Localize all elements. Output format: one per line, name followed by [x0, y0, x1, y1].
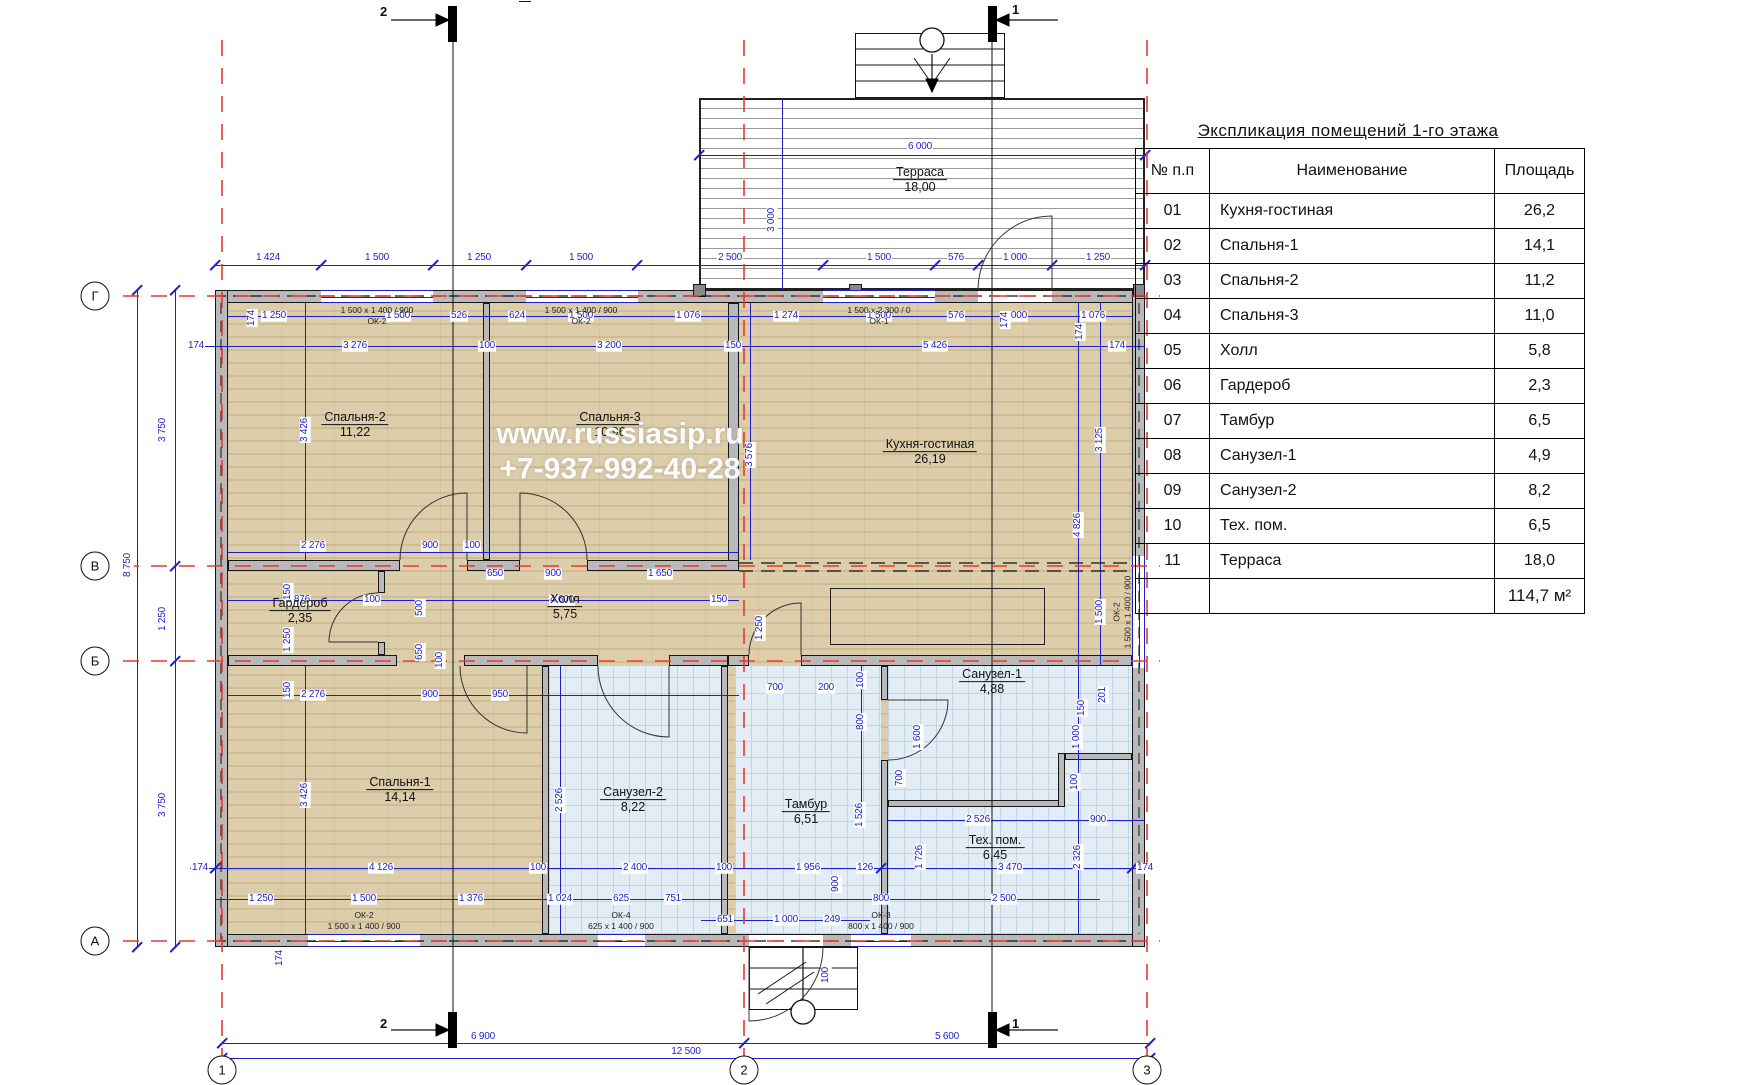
room-area: 4,88 — [980, 683, 1004, 697]
dimension-label: 4 126 — [368, 863, 394, 874]
room-schedule-table: № п.п Наименование Площадь 01 Кухня-гост… — [1135, 148, 1585, 614]
row-room-area: 11,0 — [1495, 299, 1585, 334]
wall — [1065, 753, 1132, 760]
room-label: Тех. пом.6,45 — [966, 833, 1025, 863]
room-label: Спальня-211,22 — [321, 410, 388, 440]
row-room-area: 5,8 — [1495, 334, 1585, 369]
table-row: 08 Санузел-1 4,9 — [1136, 439, 1585, 474]
dimension-label: 900 — [421, 690, 439, 701]
wall — [464, 655, 598, 666]
dimension-label: 174 — [1000, 311, 1011, 329]
wall — [215, 290, 228, 947]
dimension-label: 651 — [716, 915, 734, 926]
section-number: 1 — [1012, 2, 1019, 17]
row-number: 03 — [1136, 264, 1210, 299]
dimension-label: 1 000 — [773, 915, 799, 926]
section-flag — [988, 6, 997, 42]
table-total-row: 114,7 м² — [1136, 579, 1585, 614]
dimension-label: 174 — [1075, 323, 1086, 341]
dimension-label: 1 250 — [755, 615, 766, 641]
dimension-line — [222, 1043, 1150, 1044]
dimension-label: 100 — [715, 863, 733, 874]
table-row: 06 Гардероб 2,3 — [1136, 369, 1585, 404]
room-name: Гардероб — [270, 596, 331, 611]
room-area: 14,14 — [384, 791, 415, 805]
row-room-area: 2,3 — [1495, 369, 1585, 404]
dimension-label: 2 500 — [991, 894, 1017, 905]
room-area: 18,00 — [904, 181, 935, 195]
window-tag: 1 500 x 1 400 / 900ОК-2 — [341, 305, 414, 326]
room-label: Санузел-28,22 — [600, 785, 666, 815]
dimension-label: 174 — [191, 863, 209, 874]
wall — [801, 655, 1132, 666]
dimension-label: 2 500 — [717, 253, 743, 264]
dimension-label: 1 274 — [773, 311, 799, 322]
row-room-name: Терраса — [1210, 544, 1495, 579]
dimension-label: 100 — [529, 863, 547, 874]
dimension-label: 900 — [1089, 815, 1107, 826]
room-label: Спальня-114,14 — [366, 775, 433, 805]
wall — [888, 800, 1065, 807]
table-row: 01 Кухня-гостиная 26,2 — [1136, 194, 1585, 229]
row-room-name: Спальня-3 — [1210, 299, 1495, 334]
window-size: ОК-2 — [328, 910, 401, 921]
dimension-label: 174 — [1136, 863, 1154, 874]
plan-title — [519, 0, 531, 2]
schedule-title: Экспликация помещений 1-го этажа — [1198, 121, 1499, 141]
room-name: Санузел-2 — [600, 785, 666, 800]
dimension-label: 3 470 — [997, 863, 1023, 874]
dimension-label: 1 424 — [255, 253, 281, 264]
dimension-line — [222, 1058, 1150, 1059]
dimension-label: 1 250 — [1085, 253, 1111, 264]
window-size: ОК-3 — [848, 910, 914, 921]
window-tag: ОК-21 500 x 1 400 / 900 — [1111, 576, 1132, 649]
row-room-name: Санузел-2 — [1210, 474, 1495, 509]
wall — [721, 666, 728, 934]
dimension-label: 6 000 — [907, 142, 933, 153]
dimension-line — [175, 290, 176, 947]
watermark-site: www.russiasip.ru — [496, 418, 743, 453]
room-label: Тамбур6,51 — [782, 797, 830, 827]
dimension-label: 150 — [710, 595, 728, 606]
dimension-label: 751 — [664, 894, 682, 905]
dimension-label: 1 600 — [913, 724, 924, 750]
row-room-area: 18,0 — [1495, 544, 1585, 579]
dimension-label: 100 — [463, 541, 481, 552]
dimension-label: 3 125 — [1095, 427, 1106, 453]
wall — [1058, 753, 1065, 807]
row-room-area: 4,9 — [1495, 439, 1585, 474]
dimension-label: 1 500 — [568, 253, 594, 264]
table-row: 10 Тех. пом. 6,5 — [1136, 509, 1585, 544]
axis-marker-Г: Г — [81, 282, 110, 311]
room-area: 26,19 — [914, 453, 945, 467]
total-empty-1 — [1136, 579, 1210, 614]
dimension-line — [1078, 303, 1079, 934]
door-opening — [749, 935, 823, 946]
dimension-label: 100 — [856, 671, 867, 689]
axis-marker-Б: Б — [81, 647, 110, 676]
dimension-label: 100 — [821, 966, 832, 984]
total-area: 114,7 м² — [1495, 579, 1585, 614]
dimension-label: 500 — [415, 599, 426, 617]
window — [308, 934, 420, 947]
axis-marker-2: 2 — [730, 1056, 759, 1085]
dimension-label: 8 750 — [123, 552, 134, 578]
dimension-label: 100 — [478, 341, 496, 352]
row-number: 06 — [1136, 369, 1210, 404]
window-mark: ОК-2 — [545, 316, 618, 327]
window-tag: 1 500 x 1 400 / 900ОК-2 — [545, 305, 618, 326]
table-row: 02 Спальня-1 14,1 — [1136, 229, 1585, 264]
dimension-label: 1 500 — [866, 253, 892, 264]
window-size: ОК-2 — [1111, 576, 1122, 649]
dimension-label: 576 — [947, 253, 965, 264]
wall — [693, 284, 706, 297]
window-tag: 1 500 x 2 300 / 0ОК-1 — [847, 305, 910, 326]
room-name: Тамбур — [782, 797, 830, 812]
room-area: 6,51 — [794, 813, 818, 827]
row-number: 04 — [1136, 299, 1210, 334]
room-area: 6,45 — [983, 849, 1007, 863]
dimension-label: 624 — [508, 311, 526, 322]
window — [598, 934, 645, 947]
room-label: Холл5,75 — [547, 592, 582, 622]
watermark-phone: +7-937-992-40-28 — [496, 452, 743, 487]
dimension-label: 174 — [275, 949, 286, 967]
window-mark: ОК-1 — [847, 316, 910, 327]
room-name: Тех. пом. — [966, 833, 1025, 848]
row-number: 10 — [1136, 509, 1210, 544]
section-flag — [988, 1012, 997, 1048]
room-area: 11,22 — [340, 426, 370, 440]
window-size: 1 500 x 2 300 / 0 — [847, 305, 910, 316]
row-number: 08 — [1136, 439, 1210, 474]
dimension-label: 5 426 — [922, 341, 948, 352]
room-area: 8,22 — [621, 801, 645, 815]
dimension-label: 650 — [486, 569, 504, 580]
wall — [378, 571, 385, 593]
dimension-line — [750, 303, 751, 560]
dimension-line — [190, 346, 1145, 347]
row-room-name: Спальня-2 — [1210, 264, 1495, 299]
row-room-name: Холл — [1210, 334, 1495, 369]
row-number: 11 — [1136, 544, 1210, 579]
dimension-line — [699, 155, 1145, 156]
dimension-label: 526 — [450, 311, 468, 322]
col-header-area: Площадь — [1495, 149, 1585, 194]
stairs — [749, 947, 858, 1010]
row-room-area: 26,2 — [1495, 194, 1585, 229]
dimension-label: 900 — [544, 569, 562, 580]
stairs — [855, 33, 1005, 98]
dimension-label: 1 956 — [795, 863, 821, 874]
dimension-label: 2 276 — [300, 690, 326, 701]
dimension-label: 174 — [247, 309, 258, 327]
section-flag — [448, 1012, 457, 1048]
total-empty-2 — [1210, 579, 1495, 614]
dimension-label: 150 — [283, 681, 294, 699]
window — [526, 290, 638, 303]
dimension-label: 1 250 — [261, 311, 287, 322]
dimension-label: 2 526 — [555, 787, 566, 813]
row-room-area: 11,2 — [1495, 264, 1585, 299]
section-number: 2 — [380, 1016, 387, 1031]
window — [851, 934, 911, 947]
room-label: Гардероб2,35 — [270, 596, 331, 626]
axis-marker-А: А — [81, 927, 110, 956]
room-area: 2,35 — [288, 612, 312, 626]
window-mark: 800 x 1 400 / 900 — [848, 921, 914, 932]
room-name: Спальня-2 — [321, 410, 388, 425]
row-number: 07 — [1136, 404, 1210, 439]
window — [321, 290, 433, 303]
dimension-label: 3 576 — [745, 442, 756, 468]
dimension-label: 100 — [363, 595, 381, 606]
dimension-label: 800 — [872, 894, 890, 905]
dimension-label: 1 250 — [283, 627, 294, 653]
row-room-area: 14,1 — [1495, 229, 1585, 264]
dimension-label: 1 376 — [458, 894, 484, 905]
dimension-label: 2 326 — [1073, 844, 1084, 870]
window-tag: ОК-4625 x 1 400 / 900 — [588, 910, 654, 931]
dimension-label: 1 076 — [1080, 311, 1106, 322]
window-size: ОК-4 — [588, 910, 654, 921]
dimension-label: 1 000 — [1072, 724, 1083, 750]
door-opening — [978, 291, 1052, 302]
dimension-label: 1 250 — [248, 894, 274, 905]
row-room-name: Санузел-1 — [1210, 439, 1495, 474]
axis-marker-3: 3 — [1133, 1056, 1162, 1085]
dimension-label: 150 — [724, 341, 742, 352]
window-mark: 1 500 x 1 400 / 900 — [1122, 576, 1133, 649]
table-row: 05 Холл 5,8 — [1136, 334, 1585, 369]
dimension-label: 1 500 — [364, 253, 390, 264]
window-mark: 625 x 1 400 / 900 — [588, 921, 654, 932]
dimension-label: 3 750 — [158, 417, 169, 443]
dimension-label: 3 276 — [342, 341, 368, 352]
row-room-area: 8,2 — [1495, 474, 1585, 509]
dimension-label: 1 726 — [915, 844, 926, 870]
dimension-label: 201 — [1098, 686, 1109, 704]
dimension-label: 700 — [895, 769, 906, 787]
row-room-area: 6,5 — [1495, 509, 1585, 544]
dimension-label: 1 526 — [855, 802, 866, 828]
wall — [881, 760, 888, 934]
window-tag: ОК-3800 x 1 400 / 900 — [848, 910, 914, 931]
section-flag — [448, 6, 457, 42]
room-label: Терраса18,00 — [893, 165, 947, 195]
room-area: 5,75 — [553, 608, 577, 622]
row-number: 05 — [1136, 334, 1210, 369]
dimension-label: 3 200 — [596, 341, 622, 352]
table-row: 04 Спальня-3 11,0 — [1136, 299, 1585, 334]
watermark: www.russiasip.ru +7-937-992-40-28 — [496, 418, 743, 487]
window-tag: ОК-21 500 x 1 400 / 900 — [328, 910, 401, 931]
window-mark: ОК-2 — [341, 316, 414, 327]
row-room-area: 6,5 — [1495, 404, 1585, 439]
col-header-number: № п.п — [1136, 149, 1210, 194]
window-size: 1 500 x 1 400 / 900 — [545, 305, 618, 316]
dimension-label: 2 276 — [300, 541, 326, 552]
axis-marker-1: 1 — [208, 1056, 237, 1085]
window-size: 1 500 x 1 400 / 900 — [341, 305, 414, 316]
kitchen-counter — [830, 588, 1045, 645]
row-room-name: Кухня-гостиная — [1210, 194, 1495, 229]
wall — [728, 655, 749, 666]
room-label: Кухня-гостиная26,19 — [883, 437, 977, 467]
dimension-label: 3 000 — [767, 207, 778, 233]
dimension-label: 1 024 — [547, 894, 573, 905]
dimension-label: 1 250 — [158, 606, 169, 632]
room-name: Кухня-гостиная — [883, 437, 977, 452]
table-row: 03 Спальня-2 11,2 — [1136, 264, 1585, 299]
dimension-label: 2 526 — [965, 815, 991, 826]
dimension-label: 126 — [856, 863, 874, 874]
dimension-line — [137, 290, 138, 947]
row-room-name: Гардероб — [1210, 369, 1495, 404]
dimension-label: 200 — [817, 683, 835, 694]
dimension-label: 4 826 — [1073, 512, 1084, 538]
dimension-label: 1 650 — [647, 569, 673, 580]
row-number: 02 — [1136, 229, 1210, 264]
dimension-label: 3 750 — [158, 792, 169, 818]
row-number: 01 — [1136, 194, 1210, 229]
dimension-label: 100 — [435, 651, 446, 669]
dimension-label: 3 426 — [300, 782, 311, 808]
dimension-label: 900 — [831, 875, 842, 893]
dimension-line — [215, 899, 1100, 900]
table-row: 11 Терраса 18,0 — [1136, 544, 1585, 579]
dimension-label: 625 — [612, 894, 630, 905]
window — [823, 290, 935, 303]
row-room-name: Тех. пом. — [1210, 509, 1495, 544]
dimension-label: 249 — [823, 915, 841, 926]
room-name: Санузел-1 — [959, 667, 1025, 682]
wall — [669, 655, 728, 666]
dimension-label: 5 600 — [934, 1032, 960, 1043]
dimension-label: 6 900 — [470, 1032, 496, 1043]
window-mark: 1 500 x 1 400 / 900 — [328, 921, 401, 932]
room-name: Холл — [547, 592, 582, 607]
dimension-label: 1 500 — [351, 894, 377, 905]
axis-marker-В: В — [81, 552, 110, 581]
dimension-label: 174 — [1108, 341, 1126, 352]
dimension-label: 800 — [856, 713, 867, 731]
section-number: 2 — [380, 4, 387, 19]
dimension-label: 174 — [187, 341, 205, 352]
row-room-name: Спальня-1 — [1210, 229, 1495, 264]
dimension-label: 950 — [491, 690, 509, 701]
dimension-label: 12 500 — [670, 1047, 701, 1058]
table-row: 07 Тамбур 6,5 — [1136, 404, 1585, 439]
dimension-label: 900 — [421, 541, 439, 552]
dimension-label: 576 — [947, 311, 965, 322]
dimension-label: 1 500 — [1095, 599, 1106, 625]
wall — [881, 666, 888, 700]
room-name: Спальня-1 — [366, 775, 433, 790]
table-row: 09 Санузел-2 8,2 — [1136, 474, 1585, 509]
col-header-name: Наименование — [1210, 149, 1495, 194]
room-label: Санузел-14,88 — [959, 667, 1025, 697]
dimension-label: 1 076 — [675, 311, 701, 322]
dimension-label: 700 — [766, 683, 784, 694]
room-name: Терраса — [893, 165, 947, 180]
wall — [228, 560, 400, 571]
dimension-label: 2 400 — [622, 863, 648, 874]
dimension-label: 150 — [1077, 699, 1088, 717]
dimension-label: 100 — [1070, 773, 1081, 791]
dimension-label: 3 426 — [300, 417, 311, 443]
dimension-label: 1 000 — [1002, 253, 1028, 264]
dimension-line — [782, 98, 783, 290]
section-number: 1 — [1012, 1016, 1019, 1031]
dimension-line — [215, 265, 1145, 266]
row-room-name: Тамбур — [1210, 404, 1495, 439]
wall — [228, 655, 397, 666]
wall — [378, 642, 385, 655]
dimension-label: 650 — [415, 643, 426, 661]
dimension-label: 1 250 — [466, 253, 492, 264]
row-number: 09 — [1136, 474, 1210, 509]
